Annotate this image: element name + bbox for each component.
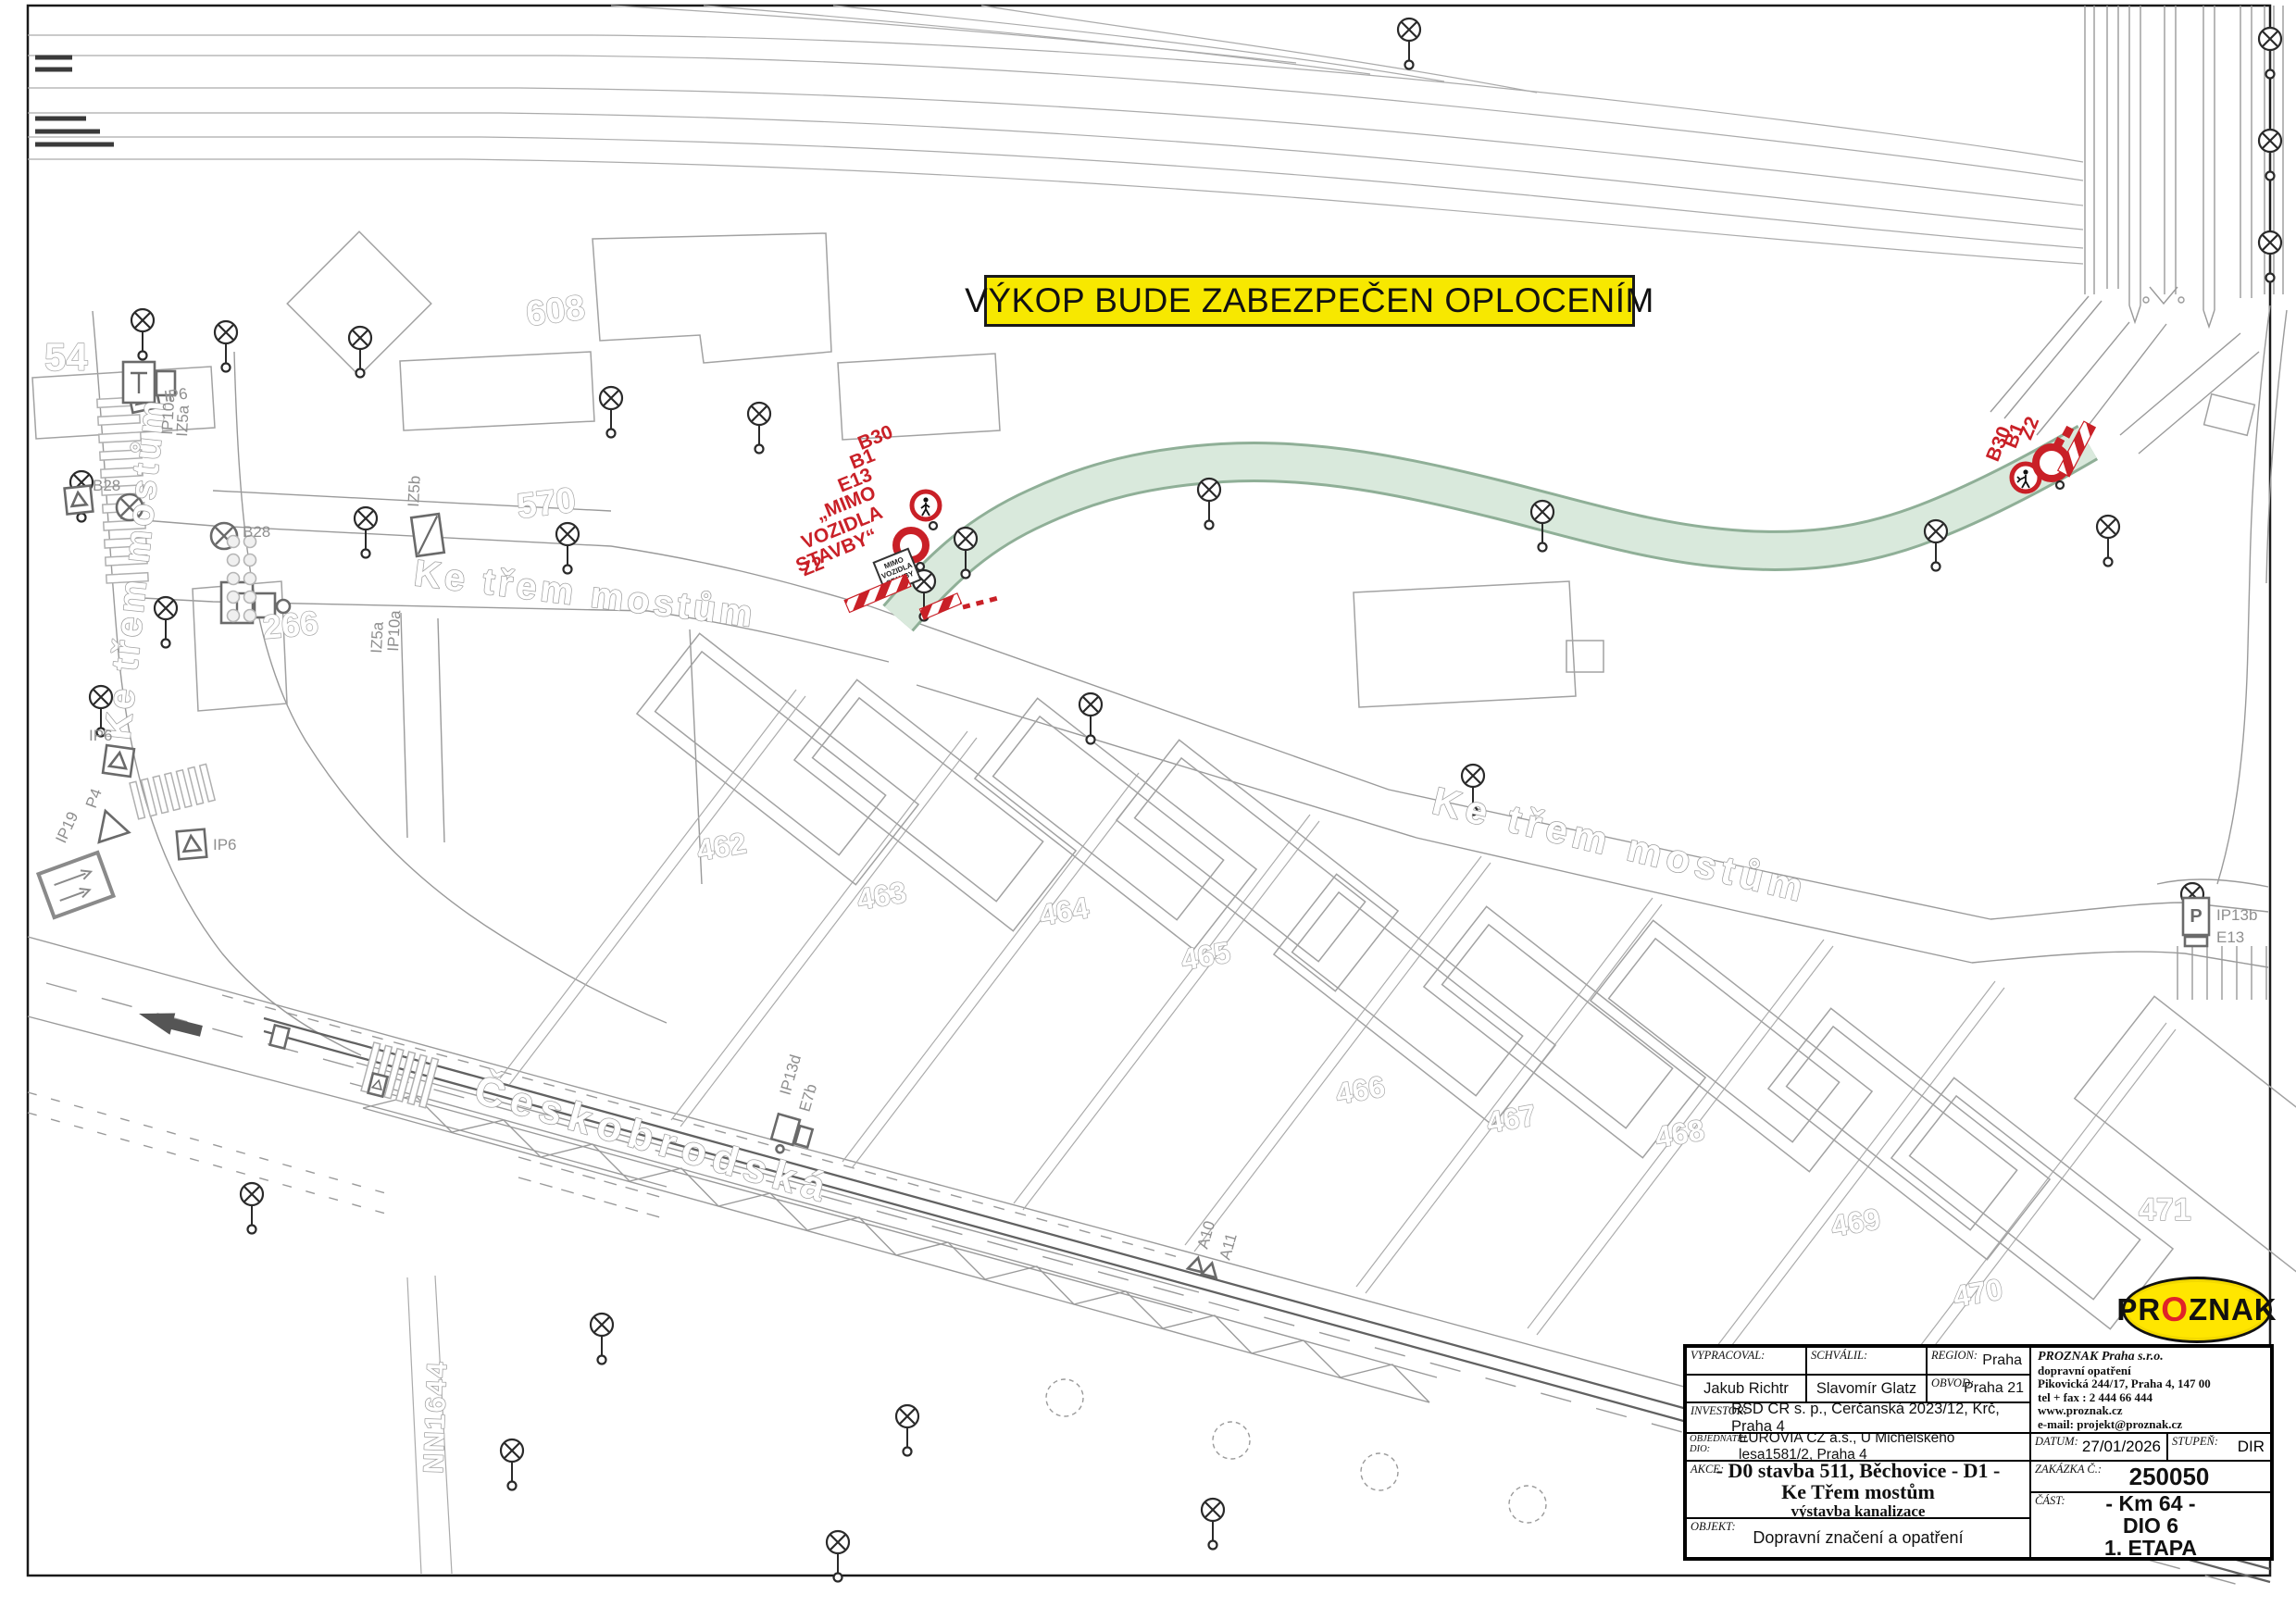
schvalil-label-cell: SCHVÁLIL: xyxy=(1806,1347,1927,1375)
iz5b-sign-icon xyxy=(411,514,444,556)
generic-sign-icon xyxy=(65,486,94,515)
svg-text:466: 466 xyxy=(1333,1069,1388,1111)
datum-cell: DATUM:27/01/2026 xyxy=(2030,1433,2167,1461)
ip13b-sign-icon: P xyxy=(2183,898,2209,946)
svg-text:465: 465 xyxy=(1179,935,1233,977)
cast-cell: ČÁST: - Km 64 - DIO 6 1. ETAPA xyxy=(2030,1492,2271,1558)
investor-cell: INVESTOR:ŘSD ČR s. p., Čerčanská 2023/12… xyxy=(1686,1402,2030,1433)
small-sign-icon xyxy=(368,1073,388,1096)
region-cell: REGION:Praha xyxy=(1927,1347,2030,1375)
svg-text:467: 467 xyxy=(1484,1098,1539,1140)
logo-o-icon: O xyxy=(2161,1290,2189,1329)
logo-pr: PR xyxy=(2116,1292,2161,1327)
bridge-top-right xyxy=(1990,6,2287,884)
svg-text:464: 464 xyxy=(1037,891,1092,932)
stupen-cell: STUPEŇ:DIR xyxy=(2167,1433,2271,1461)
note-banner: VÝKOP BUDE ZABEZPEČEN OPLOCENÍM xyxy=(984,275,1635,327)
svg-text:E13: E13 xyxy=(2216,928,2244,946)
svg-text:IZ5a: IZ5a xyxy=(368,621,387,654)
svg-text:470: 470 xyxy=(1951,1272,2005,1314)
small-sign-icon xyxy=(270,1025,290,1048)
sheet-frame xyxy=(28,6,2270,1576)
company-info-cell: PROZNAK Praha s.r.o. dopravní opatření P… xyxy=(2030,1347,2271,1433)
svg-text:463: 463 xyxy=(855,875,909,916)
ip6-sign-icon xyxy=(177,829,207,860)
svg-text:Ke třem mostům: Ke třem mostům xyxy=(412,553,758,635)
vypracoval-value-cell: Jakub Richtr xyxy=(1686,1375,1806,1402)
svg-text:NN1644: NN1644 xyxy=(418,1360,453,1474)
svg-text:IP19: IP19 xyxy=(52,809,81,846)
svg-text:570: 570 xyxy=(515,481,578,527)
schvalil-value-cell: Slavomír Glatz xyxy=(1806,1375,1927,1402)
svg-text:P4: P4 xyxy=(82,786,106,810)
svg-text:IP6: IP6 xyxy=(213,836,237,853)
railway-tracks xyxy=(28,6,2083,264)
svg-text:B28: B28 xyxy=(243,523,270,541)
p4-sign-icon xyxy=(91,806,130,842)
route-highlight xyxy=(898,442,2088,618)
svg-text:266: 266 xyxy=(261,604,319,646)
vypracoval-label-cell: VYPRACOVAL: xyxy=(1686,1347,1806,1375)
svg-text:471: 471 xyxy=(2139,1192,2191,1227)
svg-text:IP10a: IP10a xyxy=(384,609,404,652)
red-closure-left: B30 B1 E13 „MIMO VOZIDLA STAVBY“ Z2 MIMO… xyxy=(792,421,1002,619)
ip19-sign-icon xyxy=(38,853,113,917)
svg-text:E7b: E7b xyxy=(796,1082,821,1114)
objekt-cell: OBJEKT:Dopravní značení a opatření xyxy=(1686,1518,2030,1558)
svg-text:468: 468 xyxy=(1653,1113,1707,1154)
buildings xyxy=(32,231,2296,1328)
svg-text:B28: B28 xyxy=(93,477,120,494)
svg-text:IP6: IP6 xyxy=(89,727,113,744)
zakazka-cell: ZAKÁZKA Č.:250050 xyxy=(2030,1461,2271,1492)
drawing-sheet: P B30 B1 E13 „MIMO VOZIDLA STAVBY“ Z2 MI… xyxy=(0,0,2296,1607)
svg-text:P: P xyxy=(2190,906,2202,927)
ip6-sign-icon xyxy=(103,745,134,777)
objednatel-cell: OBJEDNATELDIO: EUROVIA CZ a.s., U Michel… xyxy=(1686,1433,2030,1461)
b30-sign-icon xyxy=(912,492,940,519)
svg-text:54: 54 xyxy=(44,335,88,379)
svg-text:IZ5b: IZ5b xyxy=(405,475,424,507)
obvod-cell: OBVOD:Praha 21 xyxy=(1927,1375,2030,1402)
svg-text:IZ5a: IZ5a xyxy=(173,405,193,438)
logo-znak: ZNAK xyxy=(2189,1292,2277,1327)
svg-text:A11: A11 xyxy=(1217,1231,1241,1262)
title-block: VYPRACOVAL: SCHVÁLIL: REGION:Praha Jakub… xyxy=(1683,1344,2274,1561)
svg-text:608: 608 xyxy=(524,289,587,334)
akce-cell: AKCE: - D0 stavba 511, Běchovice - D1 - … xyxy=(1686,1461,2030,1518)
proznak-logo: PROZNAK xyxy=(2122,1277,2272,1343)
plot-lines xyxy=(500,690,2176,1418)
svg-text:IP13b: IP13b xyxy=(2216,906,2257,924)
svg-text:Ke třem mostům: Ke třem mostům xyxy=(1429,779,1813,911)
svg-text:A10: A10 xyxy=(1194,1219,1219,1251)
svg-text:Ke třem mostům: Ke třem mostům xyxy=(97,395,174,741)
